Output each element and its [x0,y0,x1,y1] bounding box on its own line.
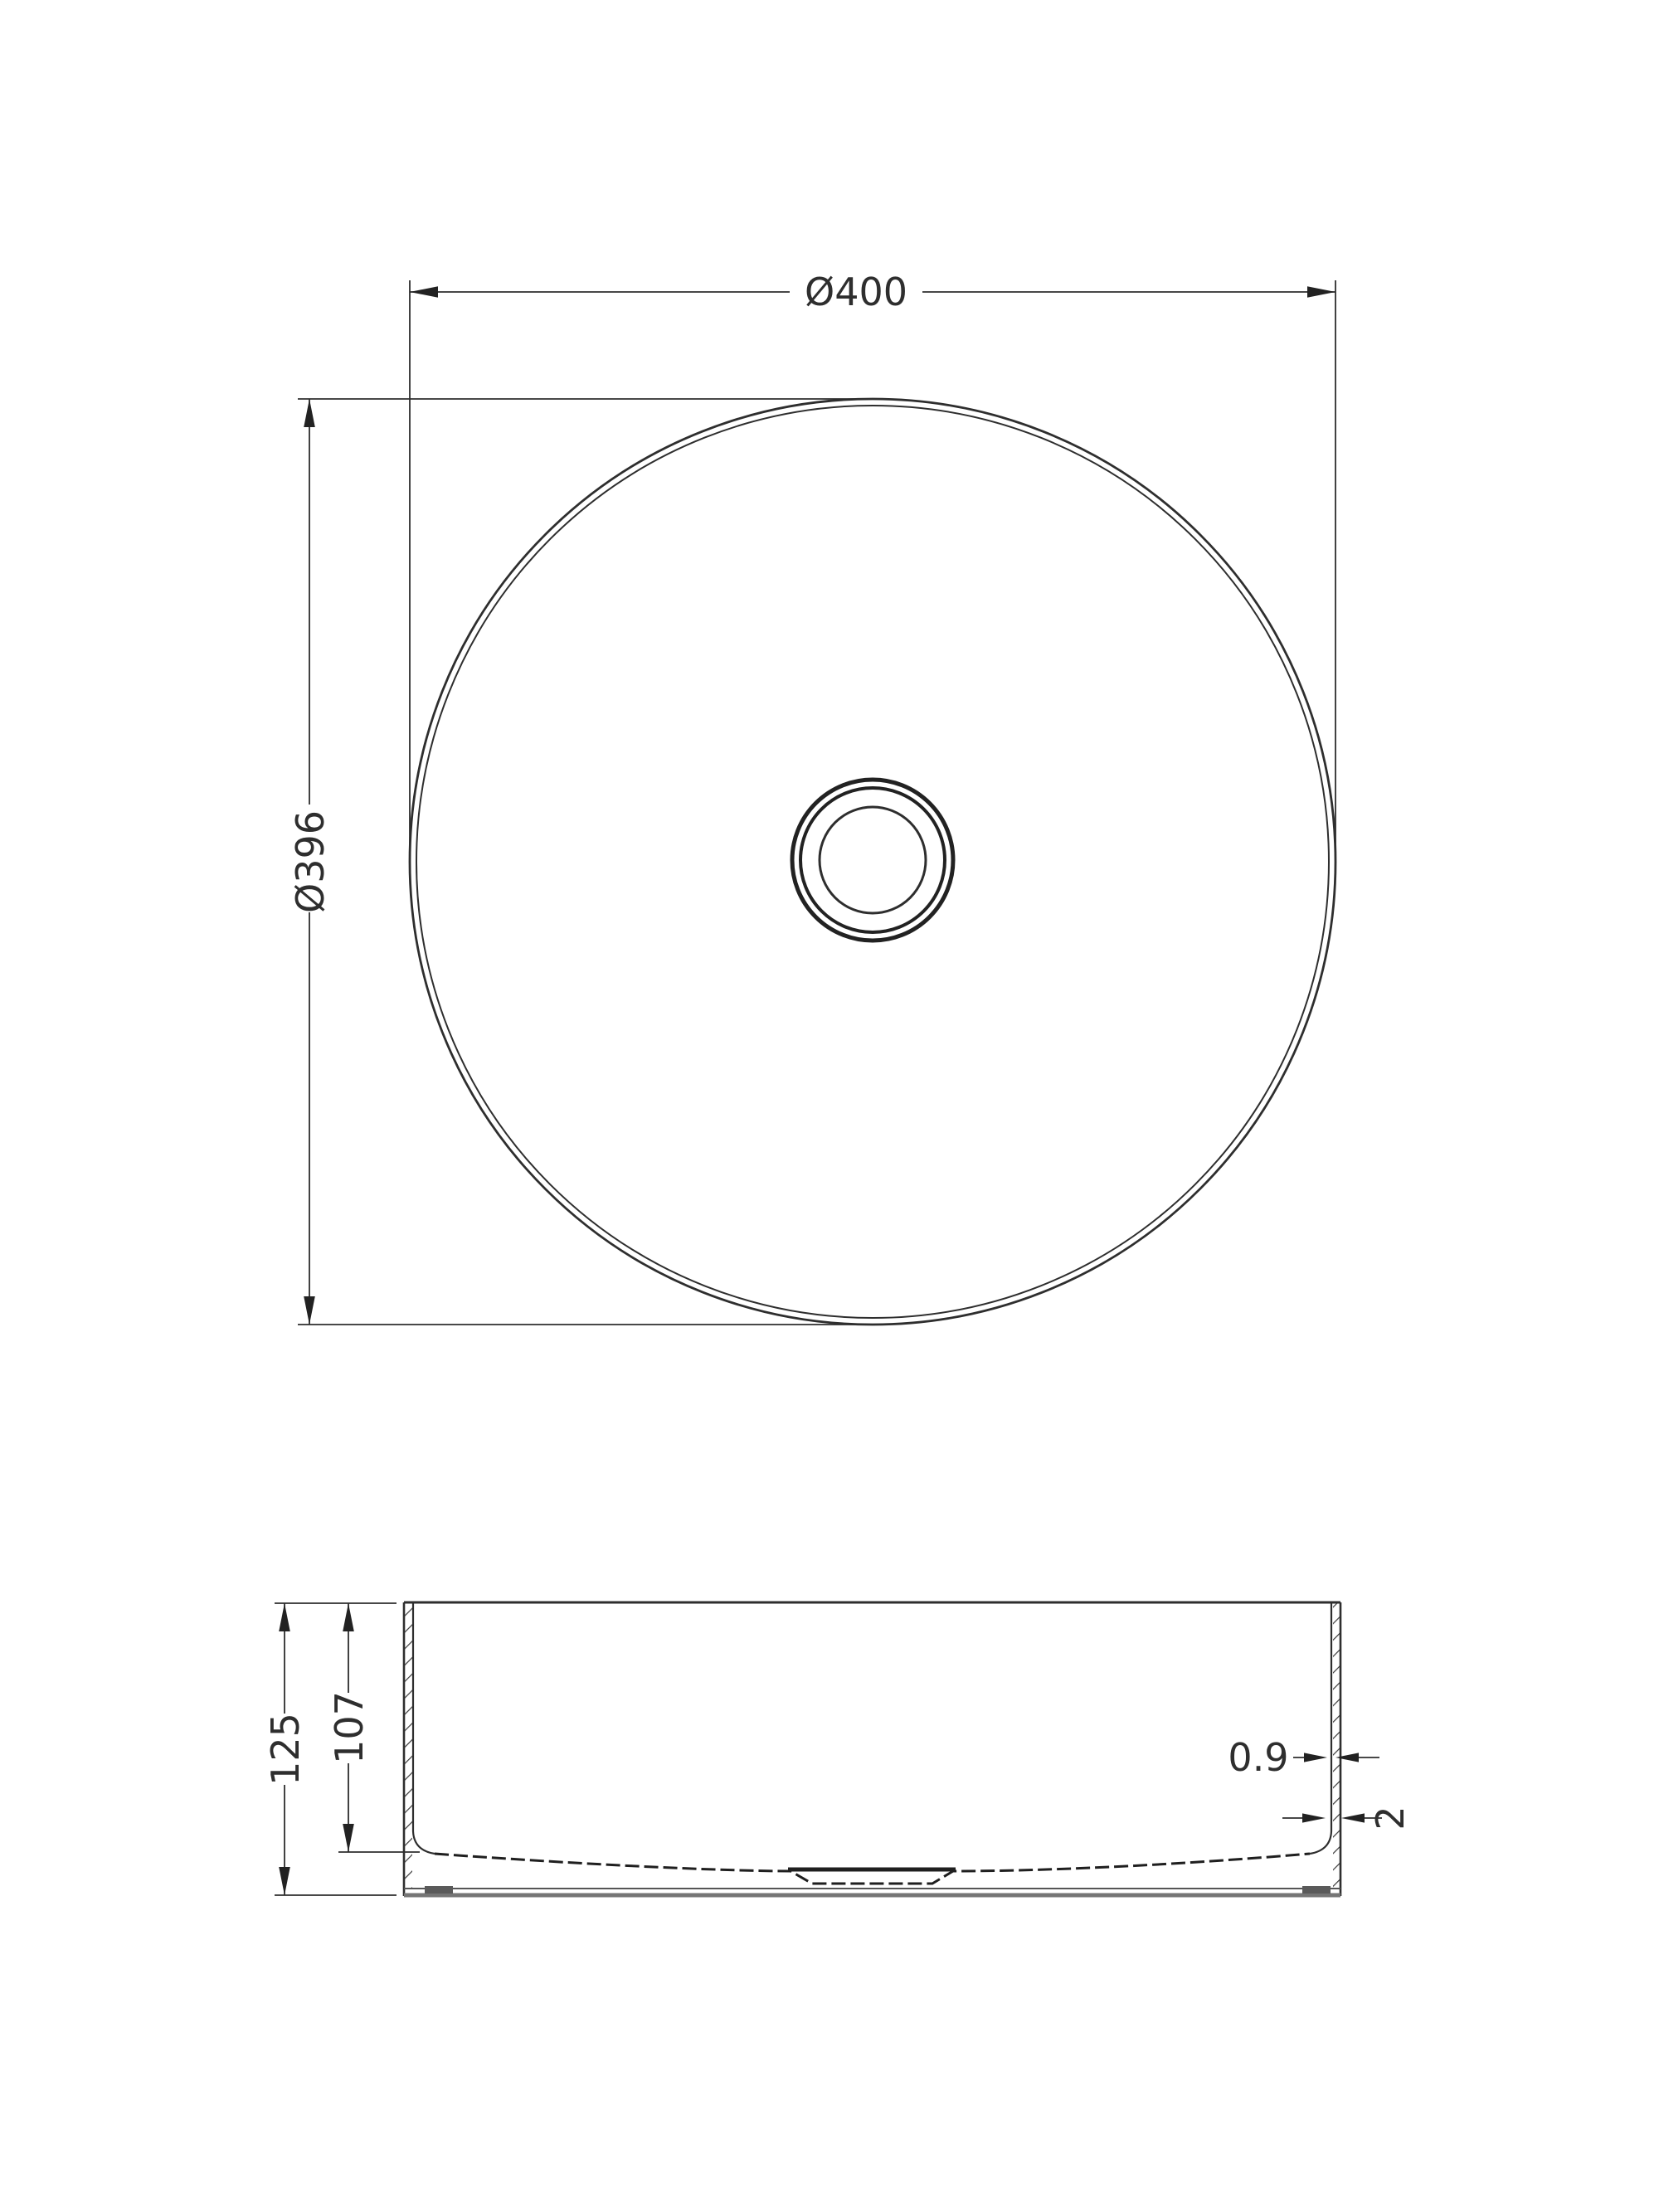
dim-inner-diameter-extension-lines [298,399,873,1325]
base-foot-right [1302,1886,1331,1894]
drain [792,780,953,941]
top-view: Ø400 Ø396 [288,270,1335,1325]
basin-technical-drawing: Ø400 Ø396 [0,0,1659,2212]
dim-overall-height-label: 125 [263,1713,308,1786]
dim-wall-thickness-upper-label: 0.9 [1228,1735,1288,1780]
dim-inner-depth-label: 107 [327,1691,372,1764]
drawing-sheet: Ø400 Ø396 [0,0,1659,2212]
drain-outer-ring [792,780,953,941]
inner-rim-circle [416,406,1329,1318]
outer-rim-circle [410,399,1335,1325]
basin-left-inner-wall [413,1602,435,1854]
dim-outer-diameter: Ø400 [410,270,1335,856]
dim-wall-thickness-upper: 0.9 [1228,1735,1379,1780]
dim-outer-diameter-extension-lines [410,280,1335,856]
right-wall-hatch [1333,1603,1340,1889]
dim-inner-diameter-label: Ø396 [288,810,333,913]
dim-inner-diameter: Ø396 [288,399,873,1325]
base-foot-left [425,1886,453,1894]
drain-mid-ring [800,788,945,932]
dim-outer-diameter-label: Ø400 [805,270,907,314]
dim-wall-thickness-lower-label: 2 [1368,1806,1413,1830]
left-wall-hatch [405,1603,412,1889]
dim-wall-thickness-lower: 2 [1282,1806,1413,1830]
drain-inner-circle [820,807,926,913]
side-view: 125 107 0.9 2 [263,1602,1413,1896]
